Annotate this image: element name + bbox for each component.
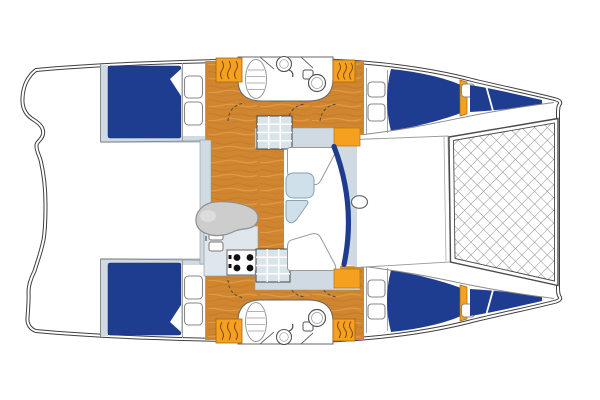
- mast-base: [352, 196, 368, 209]
- galley-stove: [227, 250, 258, 275]
- stove-burner: [247, 254, 254, 261]
- galley-sink-basin: [209, 242, 223, 251]
- deck-locker-starboard: [334, 269, 360, 288]
- catamaran-floor-plan: [0, 0, 600, 400]
- foredeck: [356, 136, 451, 268]
- companionway-steps-port: [257, 116, 292, 149]
- floor-plan-canvas: [0, 0, 600, 400]
- settee-cushion: [200, 210, 216, 222]
- stove-burner: [247, 265, 254, 272]
- trampoline-net: [454, 123, 555, 281]
- stove-knob: [229, 255, 232, 259]
- stove-burner: [234, 254, 241, 261]
- companionway-steps-starboard: [256, 249, 290, 282]
- stove-burner: [234, 265, 241, 272]
- deck-locker-port: [334, 128, 360, 146]
- stove-knob: [229, 264, 232, 268]
- bow-trampoline: [449, 119, 558, 286]
- dinette-table: [286, 173, 314, 198]
